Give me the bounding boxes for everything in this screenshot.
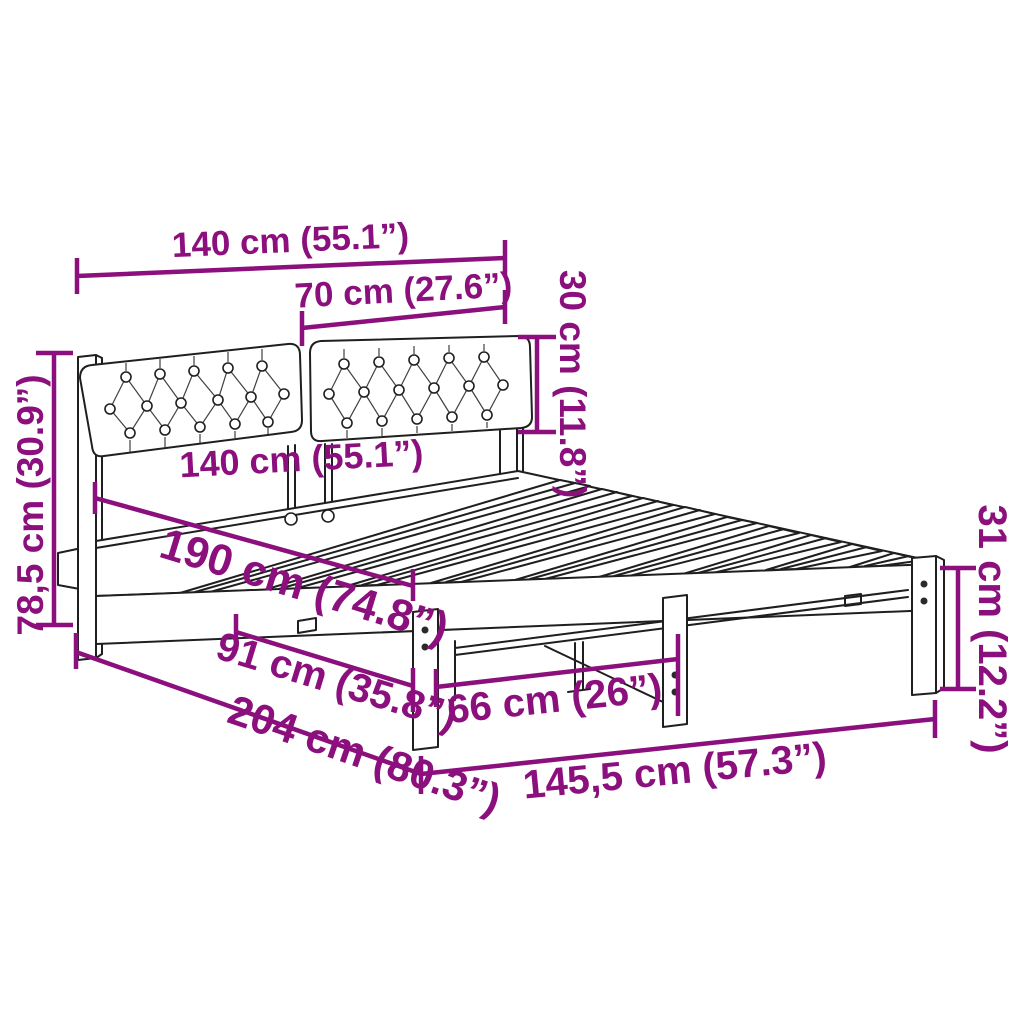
headboard-hinge-right [322, 510, 334, 522]
dim-frame-height: 31 cm (12.2”) [940, 504, 1014, 753]
dim-cushion-height-label: 30 cm (11.8”) [552, 270, 593, 498]
rail-bracket-left [298, 618, 316, 633]
dim-frame-height-label: 31 cm (12.2”) [970, 504, 1014, 753]
dim-leg-spacing: 66 cm (26”) [436, 634, 678, 732]
diagram-canvas: 140 cm (55.1”) 70 cm (27.6”) 30 cm (11.8… [0, 0, 1024, 1024]
foot-leg [912, 556, 944, 695]
dim-headboard-height-label: 78,5 cm (30.9”) [10, 374, 51, 635]
headboard-hinge-left [285, 513, 297, 525]
dim-leg-spacing-label: 66 cm (26”) [445, 666, 664, 732]
dim-headboard-height: 78,5 cm (30.9”) [10, 353, 73, 636]
dim-cushion-width: 70 cm (27.6”) [294, 265, 514, 346]
dim-headboard-width-label: 140 cm (55.1”) [171, 216, 410, 265]
bed-dimension-diagram: 140 cm (55.1”) 70 cm (27.6”) 30 cm (11.8… [0, 0, 1024, 1024]
